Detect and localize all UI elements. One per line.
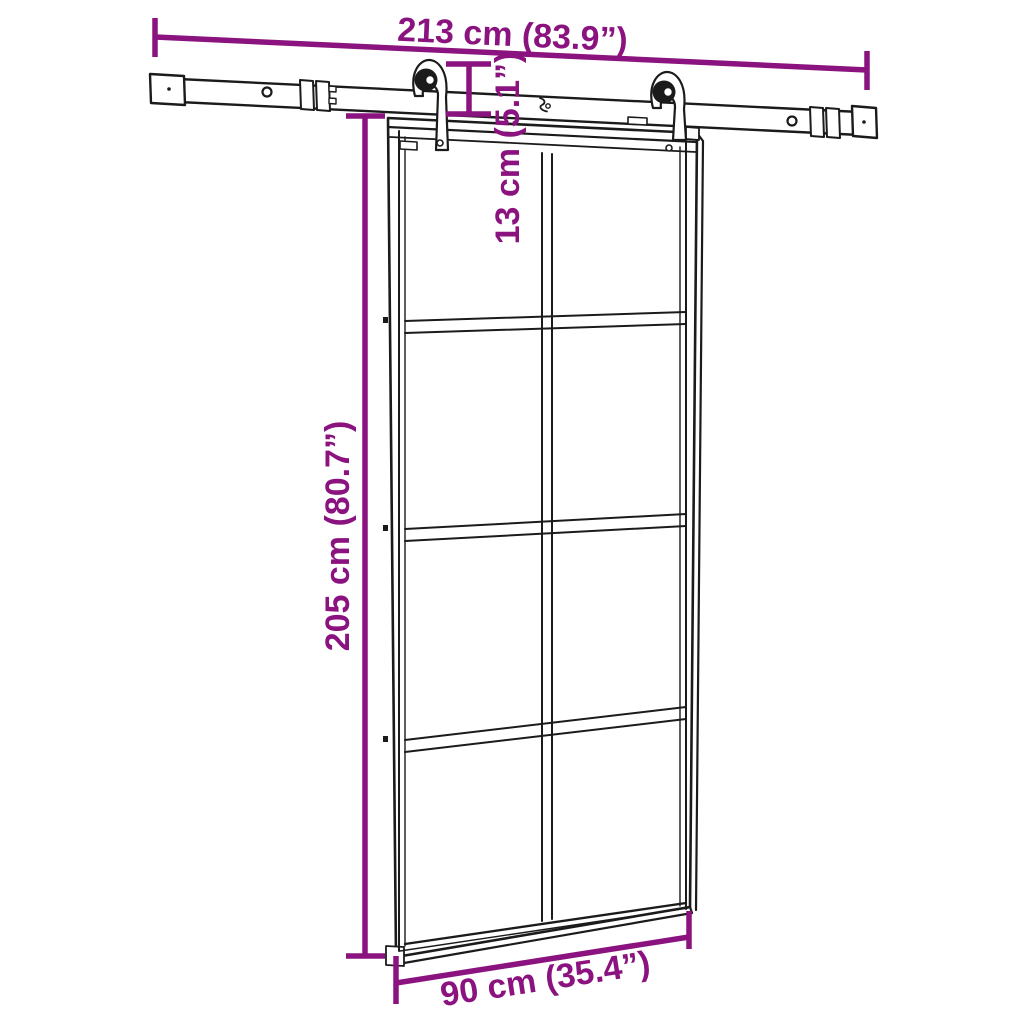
rail-break-dot	[546, 104, 550, 108]
rail-end-screw-right	[862, 120, 866, 124]
door-top-corner-cap	[686, 127, 699, 140]
door-height-dimension-label: 205 cm (80.7”)	[319, 421, 357, 652]
door	[383, 118, 703, 966]
mullion-fixing-3	[383, 736, 388, 742]
door-top-block-left	[400, 141, 417, 150]
sliding-door-dimension-diagram: 213 cm (83.9”) 13 cm (5.1”) 205 cm (80.7…	[0, 0, 1024, 1024]
rail-coupling-left-nub-1	[329, 86, 336, 92]
door-width-dimension-label: 90 cm (35.4”)	[438, 944, 653, 1014]
hanger-hub-right	[664, 88, 673, 97]
rail-hole-left	[263, 88, 272, 97]
drop-dimension-label: 13 cm (5.1”)	[489, 52, 527, 245]
door-top-block-right	[628, 117, 647, 125]
hanger-bolt-left	[437, 140, 443, 146]
hanger-hub-left	[426, 76, 435, 85]
rail-end-screw-left	[167, 87, 171, 91]
mullion-fixing-1	[383, 317, 388, 323]
rail-coupling-right-band-1	[810, 107, 824, 137]
rail-coupling-left-nub-2	[329, 98, 336, 104]
hanger-bolt-right	[666, 145, 672, 151]
mullion-fixing-2	[383, 525, 388, 531]
rail-coupling-right-band-2	[826, 108, 840, 138]
rail-coupling-left-band-2	[316, 81, 330, 111]
rail-coupling-left-band-1	[300, 80, 314, 110]
dimension-diagram-canvas: 213 cm (83.9”) 13 cm (5.1”) 205 cm (80.7…	[0, 0, 1024, 1024]
rail-hole-right	[788, 117, 797, 126]
